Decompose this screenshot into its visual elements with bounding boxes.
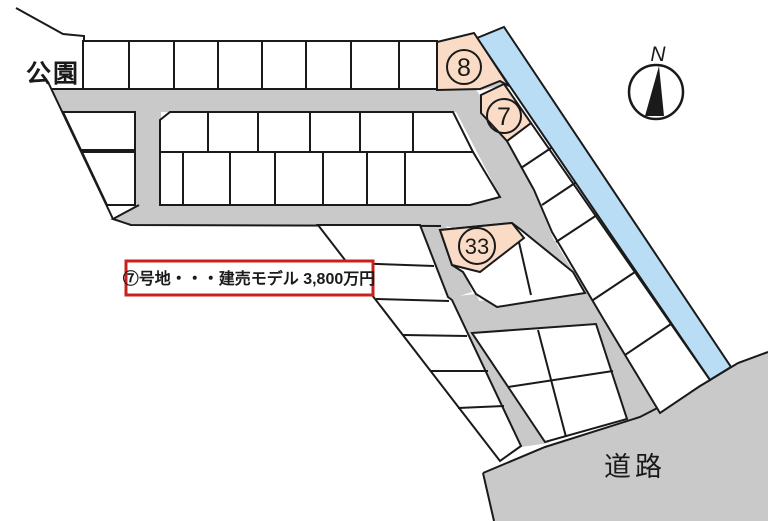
lot: [351, 41, 399, 89]
road-label: 道路: [604, 452, 666, 482]
lot-33-number: 33: [465, 234, 489, 259]
lot: [399, 41, 437, 89]
lot: [360, 112, 413, 152]
lot-divider: [403, 335, 467, 336]
lot: [174, 41, 218, 89]
lot: [323, 152, 367, 205]
lot: [262, 41, 306, 89]
lot: [306, 41, 351, 89]
lot: [258, 112, 310, 152]
lot-8-number: 8: [457, 54, 471, 82]
site-plan-map: 8 7 33 公園 道路 N ⑦号地・・・建売モデル 3,800万円: [0, 0, 768, 521]
price-note: ⑦号地・・・建売モデル 3,800万円: [123, 261, 376, 295]
lot: [367, 152, 405, 205]
compass-north-label: N: [650, 43, 666, 66]
park-label: 公園: [26, 60, 80, 88]
lot: [275, 152, 323, 205]
lot: [183, 152, 230, 205]
lot: [208, 112, 258, 152]
lot: [129, 41, 174, 89]
lot: [230, 152, 275, 205]
lot: [160, 112, 208, 152]
lot-block-central: [160, 112, 500, 205]
lot: [160, 152, 183, 205]
road-vertical-connector: [134, 104, 161, 208]
lot-7-number: 7: [497, 103, 511, 131]
lot-block-top-row: [83, 41, 437, 89]
lot: [83, 41, 129, 89]
site-plan-image: 8 7 33 公園 道路 N ⑦号地・・・建売モデル 3,800万円: [0, 0, 768, 521]
lot: [218, 41, 262, 89]
price-note-text: ⑦号地・・・建売モデル 3,800万円: [123, 269, 376, 288]
lot: [310, 112, 360, 152]
